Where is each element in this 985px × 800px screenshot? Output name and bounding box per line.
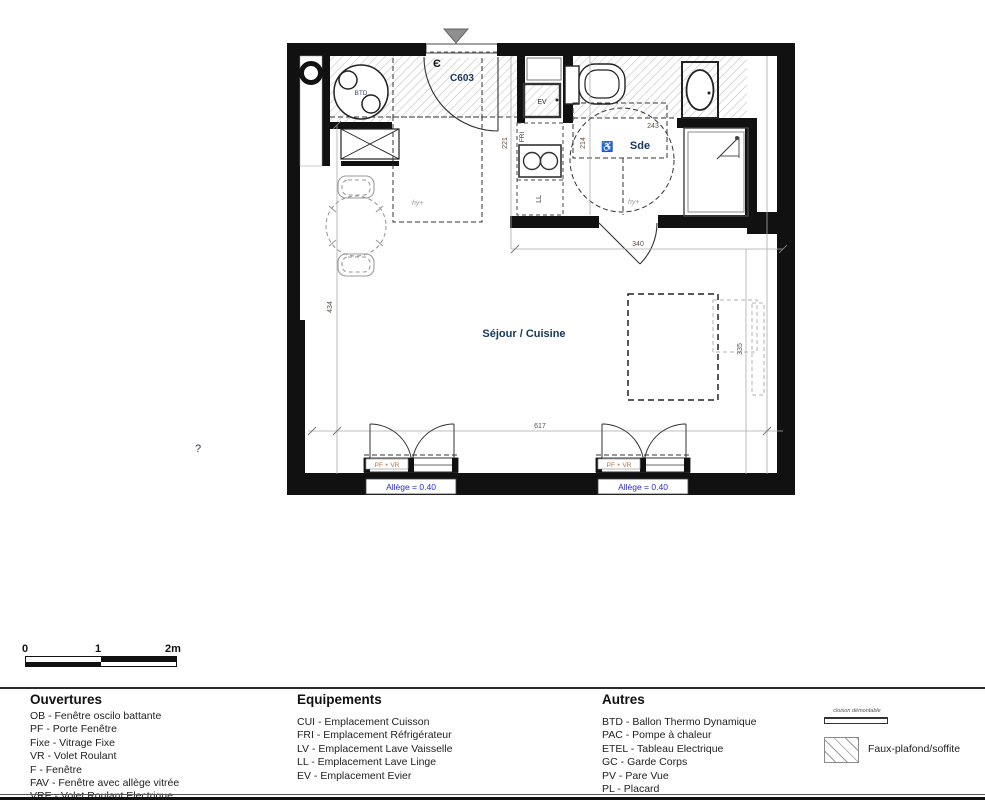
dim-434: 434 [327, 301, 334, 313]
hy-mark-sde: hy+ [628, 199, 639, 206]
room-label-sde: Sde [630, 140, 650, 152]
question-mark-annotation: ? [195, 443, 201, 455]
duct-shaft [300, 56, 322, 166]
legend-item: FRI - Emplacement Réfrigérateur [297, 729, 452, 742]
legend-item: OB - Fenêtre oscilo battante [30, 710, 179, 723]
shower [684, 128, 748, 216]
room-label-sejour-cuisine: Séjour / Cuisine [482, 328, 565, 340]
window1-allege-label: Allège = 0.40 [386, 482, 436, 492]
legend-item: LV - Emplacement Lave Vaisselle [297, 743, 452, 756]
sde-door [599, 223, 657, 264]
window2-allege-label: Allège = 0.40 [618, 482, 668, 492]
wc-toilet [565, 64, 625, 104]
legend-item: PAC - Pompe à chaleur [602, 729, 756, 742]
legend-title: Autres [602, 692, 756, 707]
legend-column-autres: Autres BTD - Ballon Thermo Dynamique PAC… [602, 692, 756, 796]
table-icon [326, 196, 386, 256]
legend-item: PV - Pare Vue [602, 770, 756, 783]
window1-type-label: PF + VR [375, 462, 400, 469]
wheelchair-icon: ♿ [601, 140, 613, 153]
scale-bar [25, 656, 177, 667]
bottom-rule-thin [0, 794, 985, 795]
dim-243: 243 [647, 123, 659, 130]
legend-item: GC - Garde Corps [602, 756, 756, 769]
legend-item: VR - Volet Roulant [30, 750, 179, 763]
dim-335: 335 [737, 343, 744, 355]
scale-tick-2m: 2m [165, 643, 181, 655]
fri-label: FRI [519, 132, 526, 143]
legend-column-ouvertures: Ouvertures OB - Fenêtre oscilo battante … [30, 692, 179, 800]
window2-type-label: PF + VR [607, 462, 632, 469]
shaft-crossed-box [341, 129, 399, 159]
legend-title: Equipements [297, 692, 452, 707]
legend-item: CUI - Emplacement Cuisson [297, 716, 452, 729]
faux-plafond-label: Faux-plafond/soffite [868, 743, 960, 755]
hy-mark-entry: hy+ [412, 200, 423, 207]
unit-number-label: C603 [450, 73, 474, 84]
legend-item: EV - Emplacement Evier [297, 770, 452, 783]
floor-plan-page: C603 Є BTD EV FRI LL Sde Séjour / Cuisin… [0, 0, 985, 800]
column-icon [302, 64, 321, 83]
dim-340: 340 [632, 241, 644, 248]
legend-item: Fixe - Vitrage Fixe [30, 737, 179, 750]
scale-tick-1: 1 [95, 643, 101, 655]
cloison-demontable-label: cloison démontable [812, 708, 902, 714]
legend-item: PF - Porte Fenêtre [30, 723, 179, 736]
dim-214: 214 [580, 137, 587, 149]
cloison-demontable-symbol [824, 717, 888, 724]
legend-item: LL - Emplacement Lave Linge [297, 756, 452, 769]
legend-item: FAV - Fenêtre avec allège vitrée [30, 777, 179, 790]
legend-title: Ouvertures [30, 692, 179, 707]
dim-221: 221 [502, 137, 509, 149]
btd-label: BTD [355, 90, 368, 97]
ll-label: LL [536, 195, 543, 203]
entry-door-symbol: Є [433, 58, 441, 70]
legend-item: F - Fenêtre [30, 764, 179, 777]
scale-tick-0: 0 [22, 643, 28, 655]
table-and-chairs [326, 176, 386, 276]
legend-item: BTD - Ballon Thermo Dynamique [602, 716, 756, 729]
legend-divider [0, 687, 985, 689]
ev-label: EV [537, 99, 547, 106]
entrance-marker-triangle-icon [444, 29, 468, 43]
faux-plafond-swatch-icon [824, 737, 859, 763]
shower-drain-dot [735, 136, 739, 140]
floor-plan-drawing: C603 Є BTD EV FRI LL Sde Séjour / Cuisin… [0, 0, 985, 630]
dim-617: 617 [534, 423, 546, 430]
legend-column-equipements: Equipements CUI - Emplacement Cuisson FR… [297, 692, 452, 783]
legend-item: ETEL - Tableau Electrique [602, 743, 756, 756]
